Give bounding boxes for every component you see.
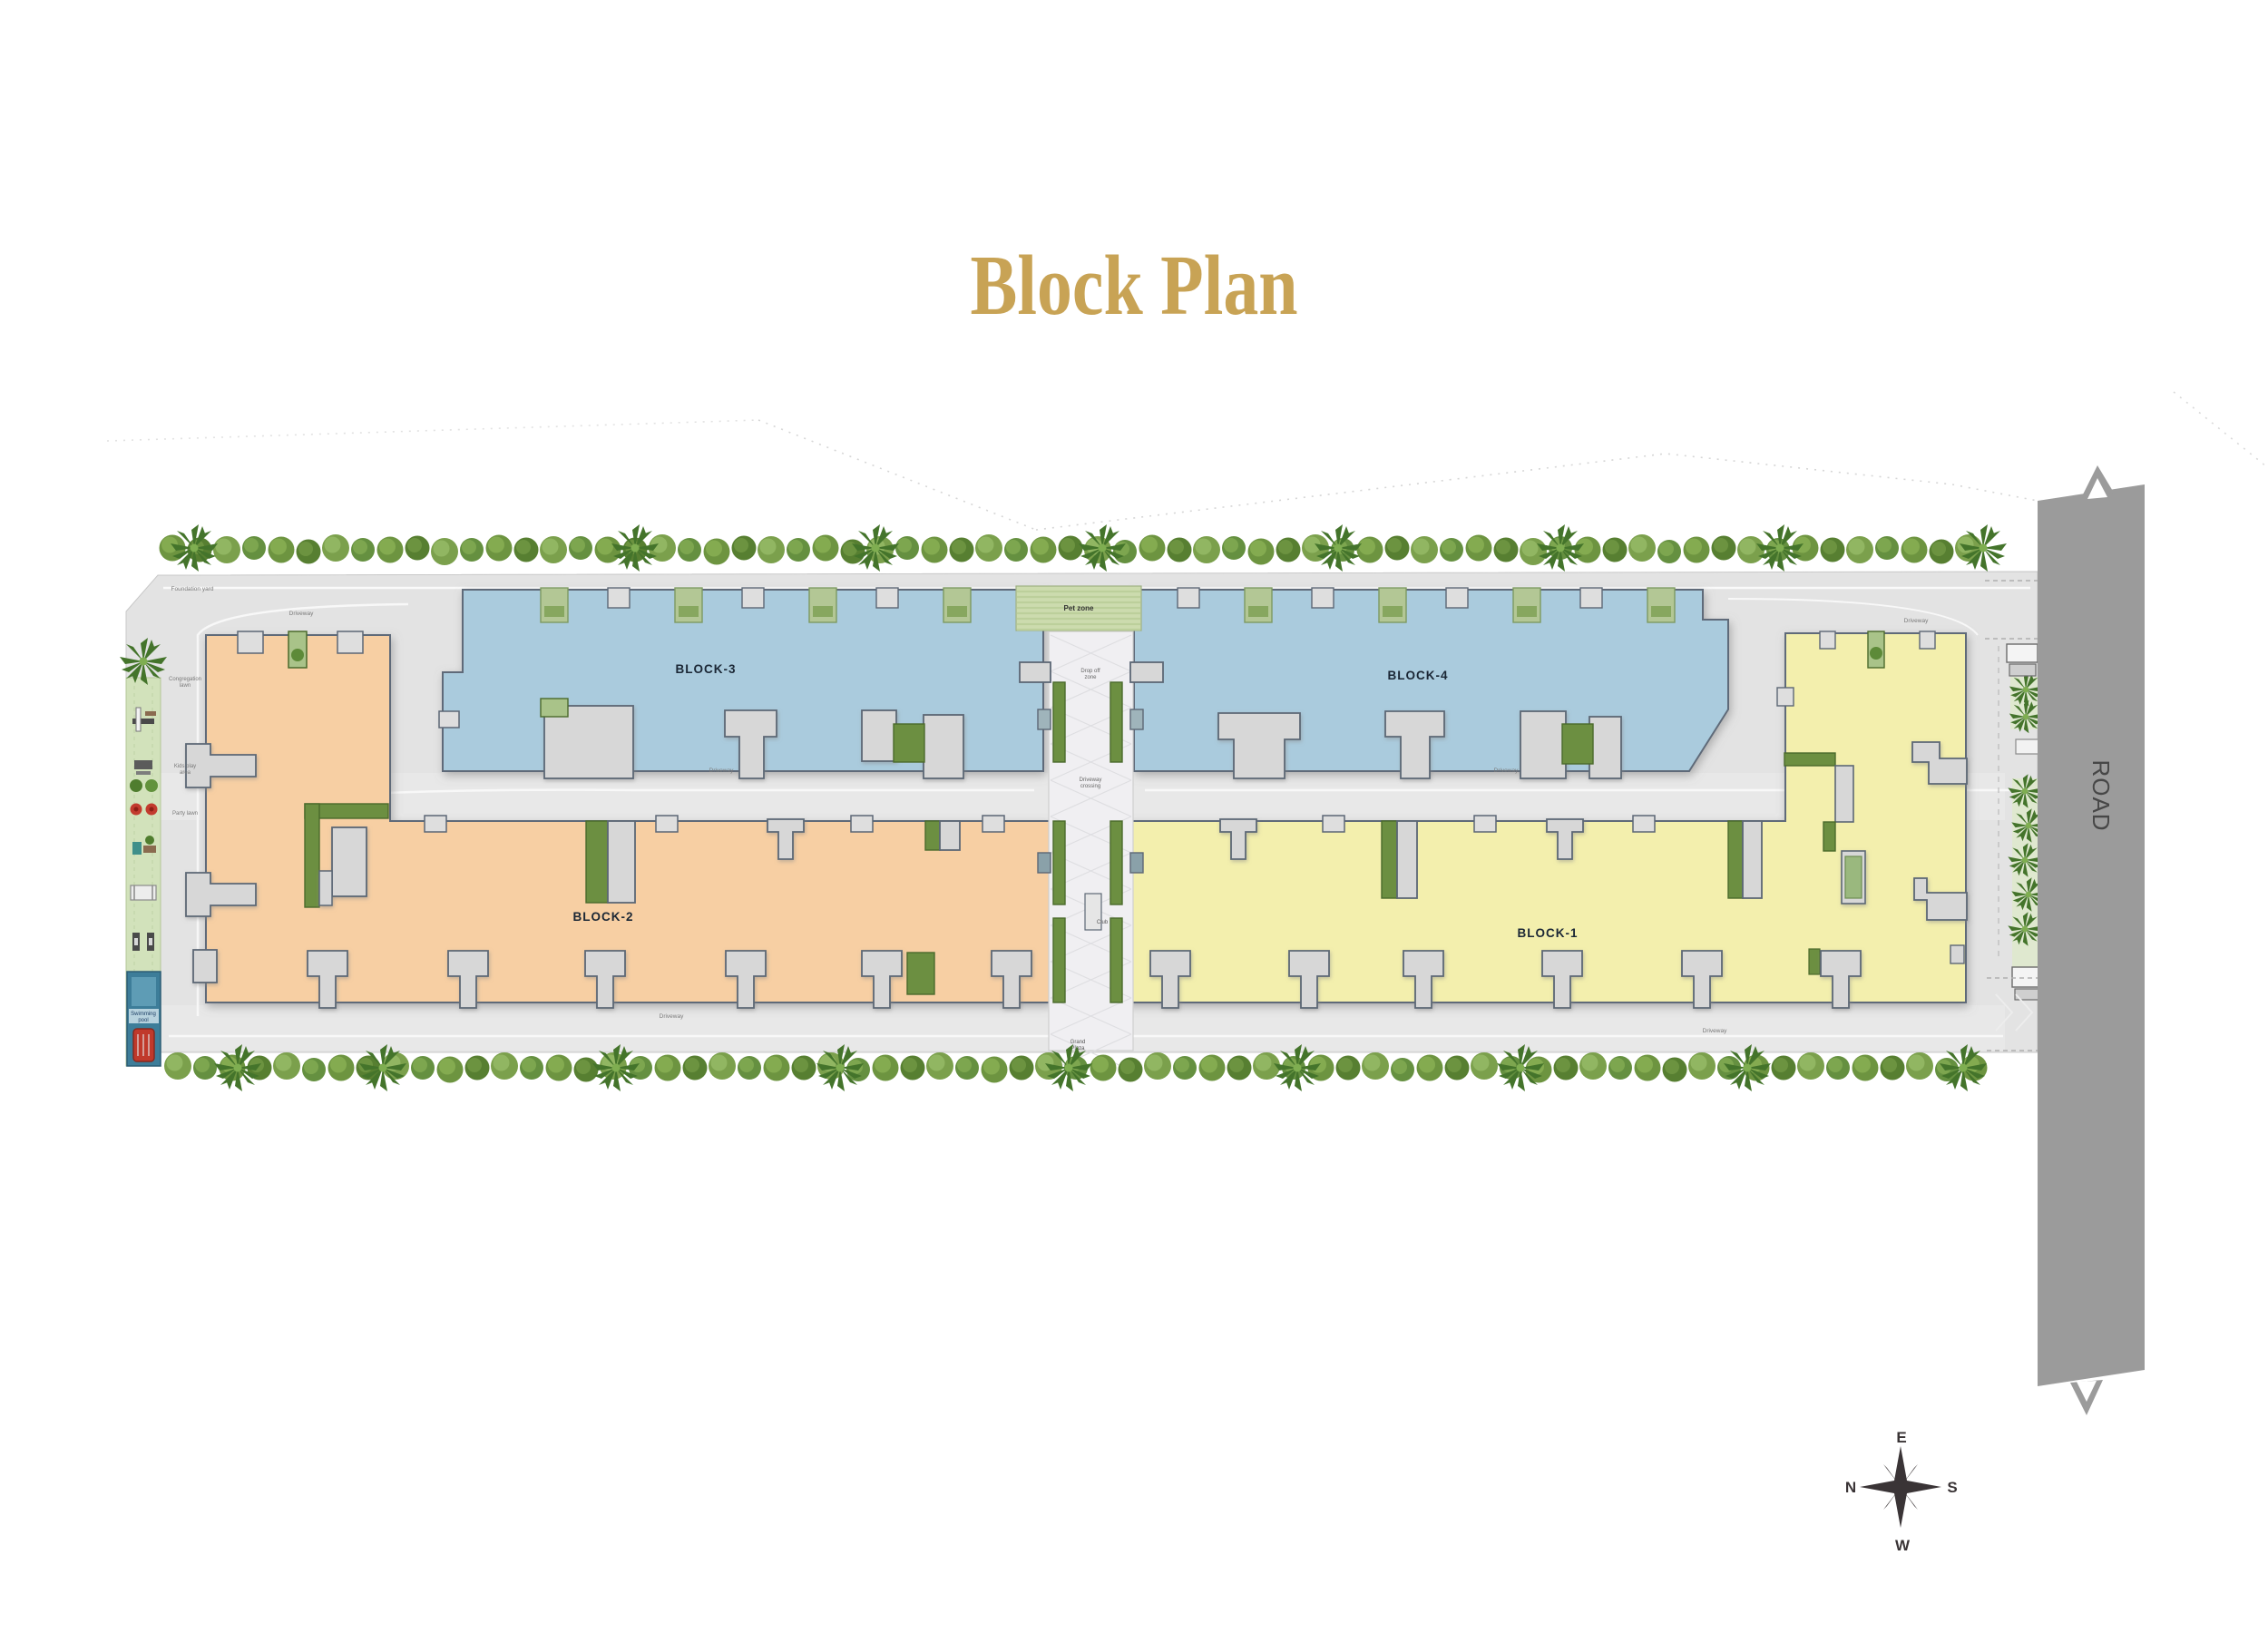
svg-text:Party lawn: Party lawn: [172, 811, 198, 816]
svg-text:Congregation: Congregation: [169, 677, 201, 682]
svg-text:Pet zone: Pet zone: [1064, 604, 1094, 612]
svg-text:Club: Club: [1097, 920, 1109, 925]
svg-text:lawn: lawn: [180, 683, 191, 689]
svg-text:BLOCK-2: BLOCK-2: [573, 910, 634, 924]
svg-text:Driveway: Driveway: [289, 611, 314, 617]
svg-text:Grand: Grand: [1070, 1040, 1086, 1045]
svg-text:Swimming: Swimming: [131, 1012, 156, 1017]
svg-text:area: area: [180, 770, 191, 776]
svg-text:BLOCK-4: BLOCK-4: [1388, 669, 1449, 682]
svg-text:BLOCK-1: BLOCK-1: [1518, 926, 1579, 940]
svg-text:Block Plan: Block Plan: [970, 238, 1297, 333]
svg-text:E: E: [1896, 1429, 1906, 1446]
svg-text:ROAD: ROAD: [2087, 759, 2115, 831]
svg-text:Drop off: Drop off: [1080, 669, 1100, 674]
svg-text:Driveway: Driveway: [709, 768, 734, 774]
svg-text:Driveway: Driveway: [1080, 777, 1102, 783]
svg-text:Foundation yard: Foundation yard: [171, 586, 214, 592]
svg-text:Driveway: Driveway: [1494, 768, 1519, 774]
svg-text:zone: zone: [1084, 675, 1097, 680]
svg-text:pool: pool: [138, 1018, 148, 1023]
svg-text:BLOCK-3: BLOCK-3: [676, 662, 737, 676]
svg-text:Driveway: Driveway: [1904, 618, 1929, 624]
svg-text:N: N: [1845, 1479, 1856, 1496]
svg-text:W: W: [1895, 1537, 1911, 1554]
svg-text:crossing: crossing: [1080, 784, 1100, 789]
svg-text:Driveway: Driveway: [660, 1013, 684, 1020]
svg-text:Driveway: Driveway: [1703, 1028, 1727, 1034]
svg-text:S: S: [1947, 1479, 1957, 1496]
svg-text:Kids play: Kids play: [174, 764, 196, 769]
